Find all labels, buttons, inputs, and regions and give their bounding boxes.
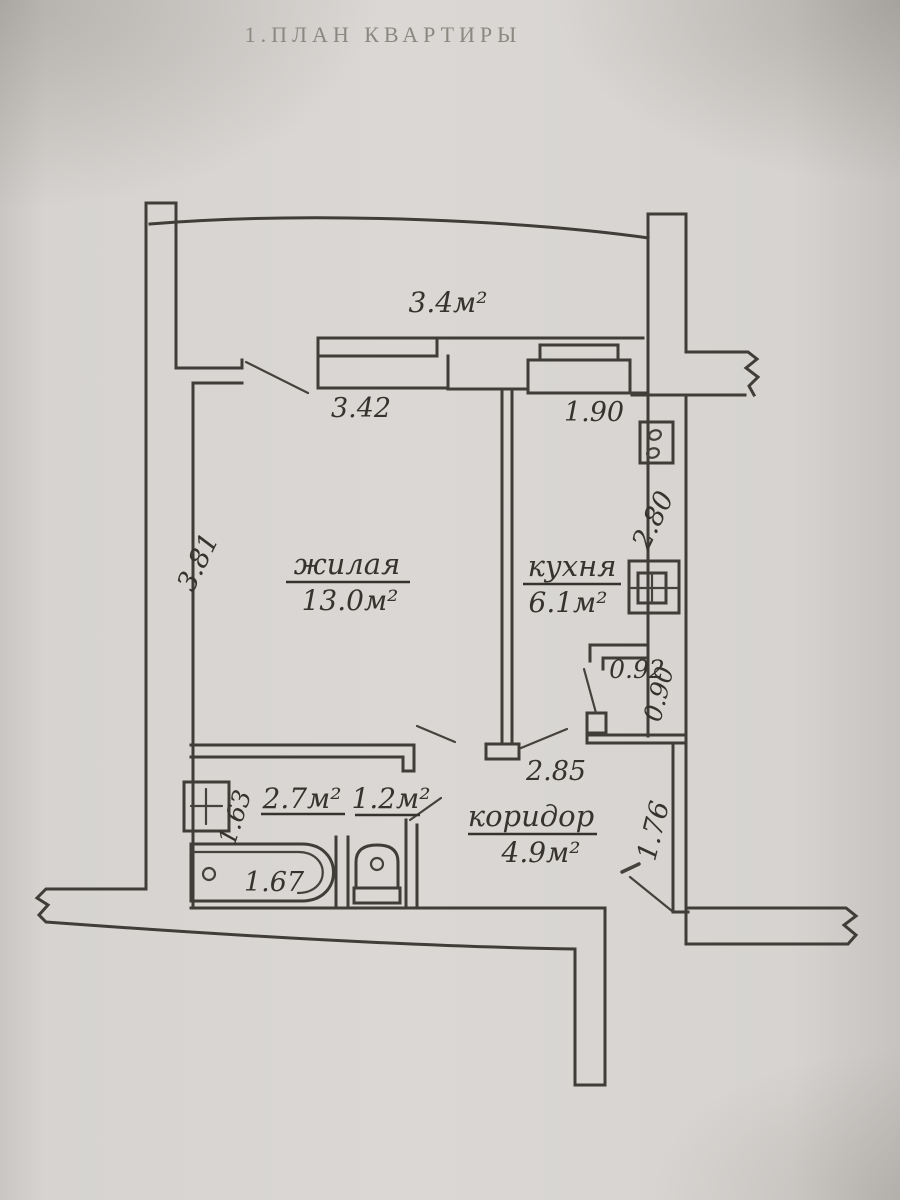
labels: 1.ПЛАН КВАРТИРЫ 3.4м² 3.42 1.90 3.81 жил… (171, 22, 680, 898)
entrance-door-swing (630, 877, 672, 911)
bottom-right-wall (686, 908, 856, 944)
corridor-length-label: 2.85 (525, 756, 586, 787)
living-kitchen-partition (502, 390, 512, 744)
kitchen-depth-label: 2.80 (626, 486, 681, 555)
window-blocks (318, 338, 648, 393)
left-wall-inner-upper (176, 231, 242, 368)
stove-icon (640, 422, 673, 463)
wc-right-partition (406, 820, 417, 906)
kitchen-area-label: 6.1м² (529, 586, 608, 619)
kitchen-sink-icon (629, 561, 679, 613)
floor-plan-drawing: 1.ПЛАН КВАРТИРЫ 3.4м² 3.42 1.90 3.81 жил… (0, 0, 900, 1200)
kitchen-room-name: кухня (528, 549, 617, 583)
kitchen-window-lower (528, 360, 630, 393)
kitchen-window-upper (540, 345, 618, 360)
corridor-entry-width-label: 1.76 (631, 798, 676, 864)
entrance-door-tick (622, 864, 639, 872)
living-depth-label: 3.81 (171, 528, 225, 596)
outer-walls (37, 203, 856, 1085)
bath-wc-partition (336, 837, 348, 906)
pantry-bottom-wall (587, 735, 686, 743)
interior-walls (191, 390, 688, 912)
pantry-door-swing (584, 669, 596, 713)
scanned-floor-plan-page: 1.ПЛАН КВАРТИРЫ 3.4м² 3.42 1.90 3.81 жил… (0, 0, 900, 1200)
balcony-area-label: 3.4м² (409, 286, 488, 319)
bottom-wall-outer (37, 889, 575, 949)
pantry-door-post (587, 713, 606, 733)
right-pillar (648, 214, 686, 247)
living-window-upper (318, 338, 437, 388)
bathroom-area-label: 2.7м² (262, 782, 342, 815)
kitchen-door-swing (521, 729, 567, 748)
left-pillar (146, 203, 176, 231)
living-window-width-label: 3.42 (331, 393, 391, 424)
balcony-door-swing (246, 362, 308, 393)
balcony-outer-edge (150, 218, 648, 238)
page-title: 1.ПЛАН КВАРТИРЫ (245, 22, 522, 47)
kitchen-window-width-label: 1.90 (564, 397, 624, 428)
right-wing-wall-top (686, 352, 758, 395)
corridor-room-name: коридор (468, 799, 594, 833)
toilet-icon (354, 845, 400, 903)
living-window-lower (318, 356, 448, 388)
bottom-pillar-stub (575, 949, 605, 1085)
bath-length-label: 1.67 (244, 867, 305, 898)
door-swings (246, 362, 672, 911)
corridor-area-label: 4.9м² (501, 836, 581, 869)
kitchen-door-post (486, 744, 519, 759)
wc-area-label: 1.2м² (352, 782, 431, 815)
living-area-label: 13.0м² (302, 584, 399, 617)
bathroom-top-wall (191, 745, 414, 771)
bathroom-width-label: 1.63 (213, 786, 258, 848)
living-room-name: жилая (294, 547, 401, 581)
fixtures (184, 422, 679, 903)
living-door-swing (417, 726, 455, 742)
